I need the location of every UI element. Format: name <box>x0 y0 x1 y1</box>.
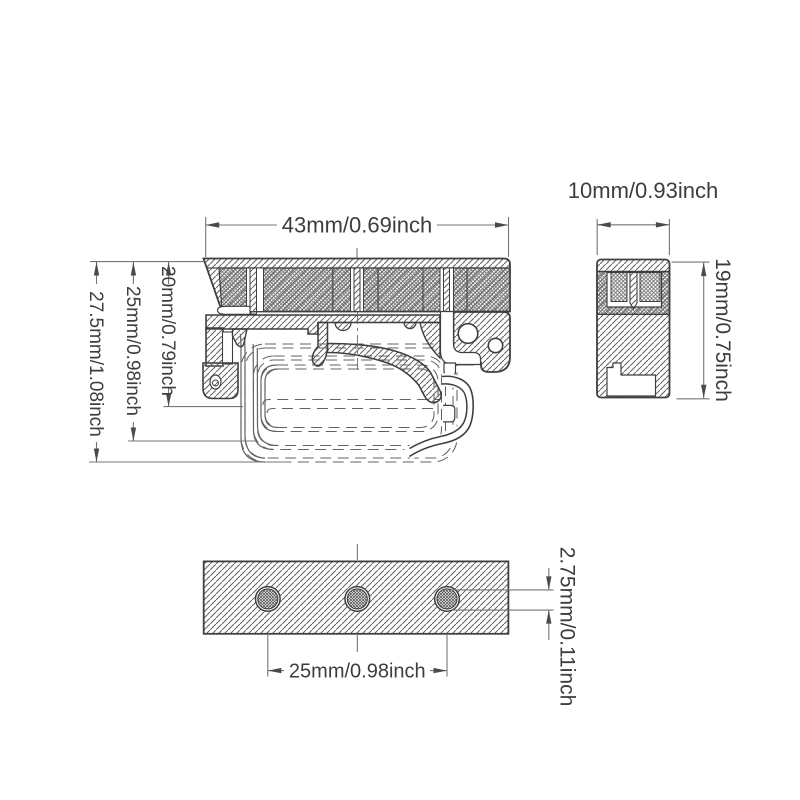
svg-text:25mm/0.98inch: 25mm/0.98inch <box>122 286 143 416</box>
svg-text:43mm/0.69inch: 43mm/0.69inch <box>282 213 432 238</box>
svg-text:20mm/0.79inch: 20mm/0.79inch <box>157 266 178 396</box>
svg-text:27.5mm/1.08inch: 27.5mm/1.08inch <box>85 291 106 437</box>
svg-text:10mm/0.93inch: 10mm/0.93inch <box>568 178 718 203</box>
svg-text:2.75mm/0.11inch: 2.75mm/0.11inch <box>556 547 579 707</box>
svg-text:19mm/0.75inch: 19mm/0.75inch <box>711 258 734 402</box>
svg-text:25mm/0.98inch: 25mm/0.98inch <box>289 661 426 683</box>
